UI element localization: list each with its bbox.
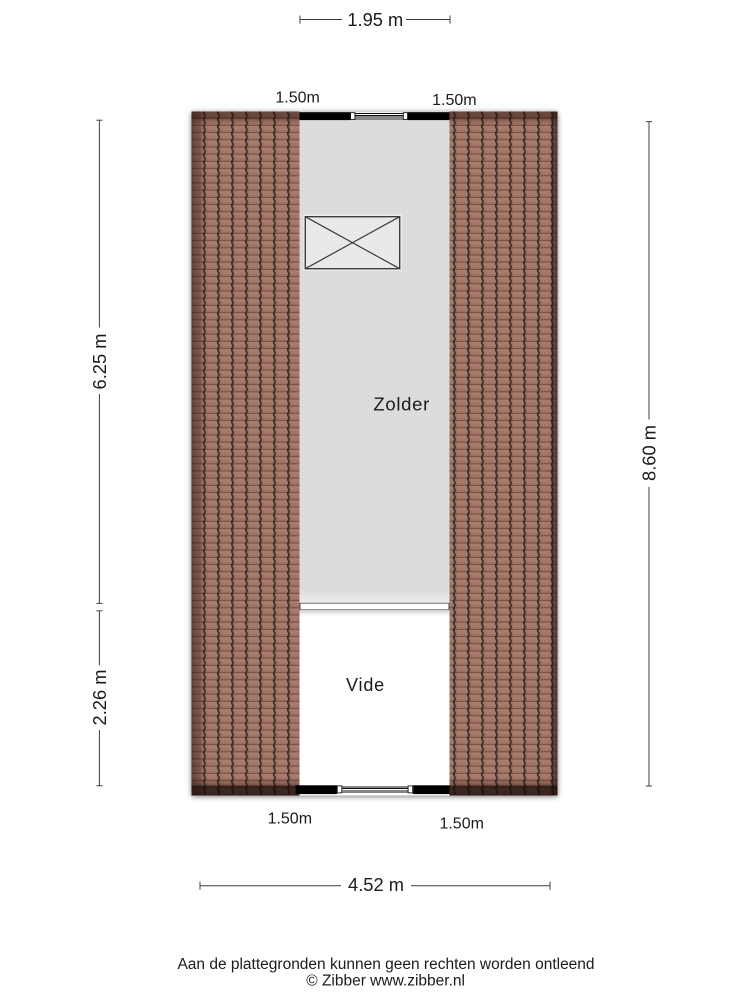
svg-text:4.52 m: 4.52 m bbox=[348, 874, 404, 895]
svg-text:© Zibber www.zibber.nl: © Zibber www.zibber.nl bbox=[306, 973, 465, 990]
svg-text:1.50m: 1.50m bbox=[268, 810, 312, 827]
svg-text:Aan de plattegronden kunnen ge: Aan de plattegronden kunnen geen rechten… bbox=[177, 956, 594, 973]
svg-text:1.95 m: 1.95 m bbox=[347, 9, 403, 30]
svg-text:2.26 m: 2.26 m bbox=[89, 670, 110, 726]
svg-text:1.50m: 1.50m bbox=[439, 815, 483, 832]
svg-text:1.50m: 1.50m bbox=[275, 89, 319, 106]
svg-text:Vide: Vide bbox=[346, 675, 385, 695]
svg-text:6.25 m: 6.25 m bbox=[89, 334, 110, 390]
svg-text:1.50m: 1.50m bbox=[432, 92, 476, 109]
svg-text:8.60 m: 8.60 m bbox=[639, 425, 660, 481]
svg-text:Zolder: Zolder bbox=[373, 394, 430, 415]
